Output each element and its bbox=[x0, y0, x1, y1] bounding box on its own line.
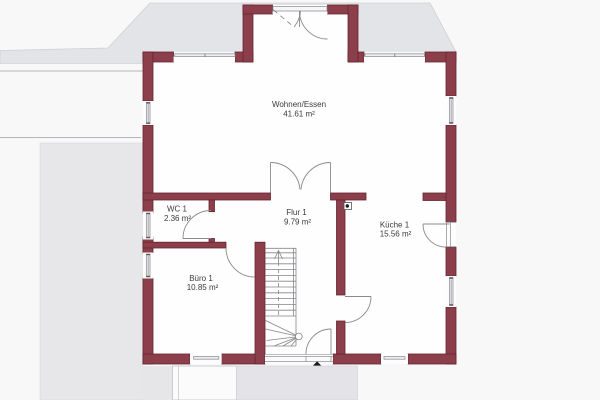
svg-text:Flur 1: Flur 1 bbox=[286, 208, 307, 217]
svg-text:Küche 1: Küche 1 bbox=[380, 221, 410, 230]
svg-text:41.61 m²: 41.61 m² bbox=[283, 110, 315, 119]
svg-text:Wohnen/Essen: Wohnen/Essen bbox=[272, 100, 326, 109]
svg-text:9.79 m²: 9.79 m² bbox=[284, 218, 311, 227]
svg-text:2.36 m²: 2.36 m² bbox=[164, 214, 191, 223]
svg-text:Büro 1: Büro 1 bbox=[189, 274, 213, 283]
svg-text:WC 1: WC 1 bbox=[167, 205, 188, 214]
svg-text:15.56 m²: 15.56 m² bbox=[380, 230, 412, 239]
svg-text:10.85 m²: 10.85 m² bbox=[187, 283, 219, 292]
